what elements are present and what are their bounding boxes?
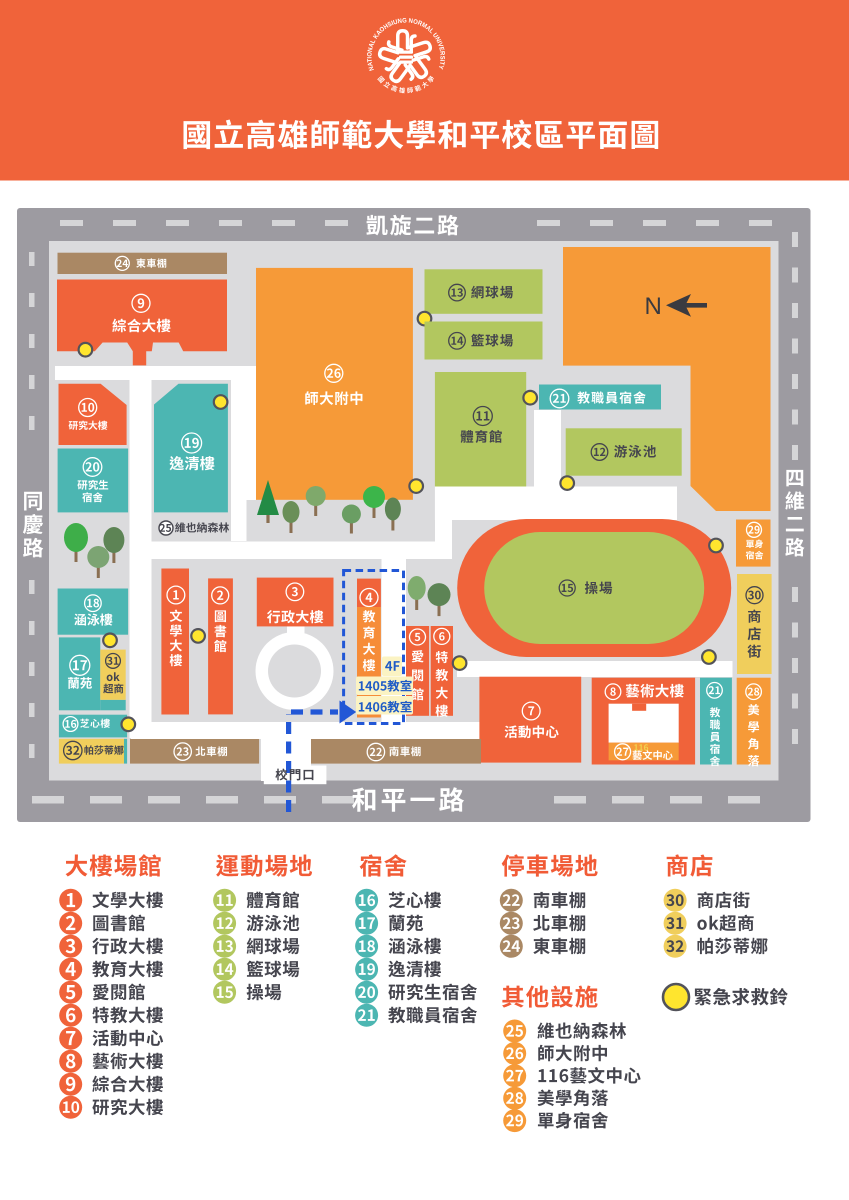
svg-text:N: N	[645, 293, 662, 320]
